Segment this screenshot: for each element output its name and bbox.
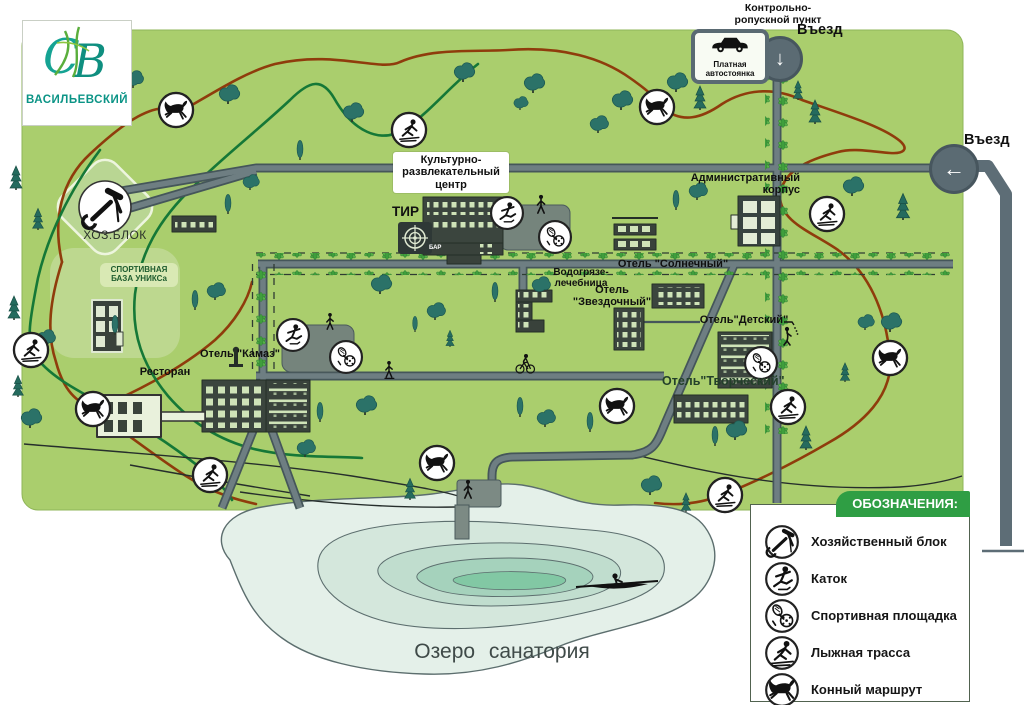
hotel-kids-label: Отель"Детский" [696, 314, 792, 326]
ski-trail-marker [392, 113, 426, 147]
hotel-star-label: Отель "Звездочный" [570, 284, 654, 309]
legend-item-ski: Лыжная трасса [751, 632, 969, 669]
ski-trail-marker [193, 458, 227, 492]
horse-route-marker [873, 341, 907, 375]
utility-small-building [172, 216, 216, 232]
sport-ground-marker [539, 221, 571, 253]
legend-item-sport: Спортивная площадка [751, 595, 969, 632]
hotel-sunny-label: Отель "Солнечный" [617, 258, 729, 270]
legend-item-rink: Каток [751, 558, 969, 595]
ice-rink-marker [277, 319, 309, 351]
parking-label: Платная автостоянка [696, 60, 764, 78]
horse-route-marker [159, 93, 193, 127]
horse-route-marker [420, 446, 454, 480]
bar-label: БАР [429, 245, 441, 251]
down-arrow-icon: ↓ [775, 48, 785, 71]
sport-base-building [92, 300, 123, 352]
legend: ОБОЗНАЧЕНИЯ: Хозяйственный блок Каток Сп… [750, 504, 970, 702]
lake-label: Озеро санатория [372, 640, 632, 664]
hotel-kamaz-label: Отель "Камаз" [192, 348, 288, 360]
right-entrance-gate: ← [929, 144, 979, 194]
restaurant-label: Ресторан [130, 366, 200, 378]
resort-map-page: С В ВАСИЛЬЕВСКИЙ Контрольно-ропускной пу… [0, 0, 1024, 705]
horse-route-marker [640, 90, 674, 124]
legend-title: ОБОЗНАЧЕНИЯ: [836, 491, 970, 517]
admin-label: Административный корпус [668, 172, 800, 197]
legend-item-utility: Хозяйственный блок [751, 521, 969, 558]
cultural-center-building [423, 197, 503, 264]
top-entrance-label: Въезд [797, 22, 857, 38]
ski-trail-marker [14, 333, 48, 367]
car-icon [708, 35, 752, 55]
ski-icon [765, 636, 799, 670]
sport-icon [765, 599, 799, 633]
hotel-kamaz-building [202, 380, 310, 432]
hotel-creative-label: Отель"Творческий" [662, 374, 782, 388]
sport-base-label: СПОРТИВНАЯ БАЗА УНИКСа [100, 263, 178, 287]
hotel-sunny-building [652, 284, 704, 308]
utility-block-marker [79, 181, 131, 233]
cultural-center-label: Культурно-развлекательный центр [393, 152, 509, 193]
shooting-range-label: ТИР [392, 204, 432, 219]
left-arrow-icon: ← [943, 156, 965, 182]
skater-icon [765, 562, 799, 596]
ice-rink-marker [491, 197, 523, 229]
hotel-star-building [614, 308, 644, 350]
horse-route-marker [600, 389, 634, 423]
tools-icon [765, 525, 799, 559]
horse-icon [765, 673, 799, 705]
logo-name: ВАСИЛЬЕВСКИЙ [23, 94, 131, 106]
ski-trail-marker [810, 197, 844, 231]
hotel-creative-building [674, 395, 748, 423]
horse-route-marker [76, 392, 110, 426]
parking-sign: Платная автостоянка [691, 29, 769, 84]
right-entrance-label: Въезд [964, 132, 1022, 148]
resort-logo: С В ВАСИЛЬЕВСКИЙ [22, 20, 132, 126]
sport-ground-marker [330, 341, 362, 373]
logo-monogram-art: С В [27, 21, 127, 87]
admin-building [731, 196, 780, 246]
pier [455, 505, 469, 539]
utility-block-label: ХОЗ.БЛОК [70, 229, 160, 242]
ski-trail-marker [708, 478, 742, 512]
legend-item-horse: Конный маршрут [751, 669, 969, 705]
ski-trail-marker [771, 390, 805, 424]
shooting-range-target [398, 222, 432, 254]
pier-platform [457, 480, 501, 507]
